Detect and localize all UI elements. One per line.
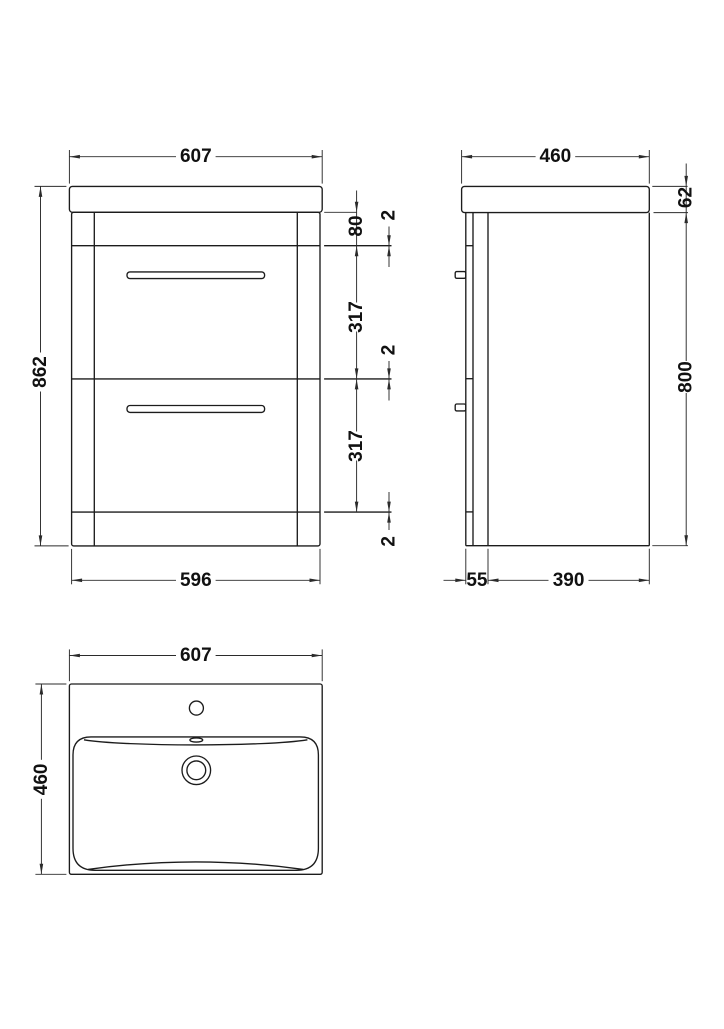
svg-text:800: 800 [676, 361, 697, 393]
svg-text:80: 80 [346, 215, 367, 236]
svg-text:2: 2 [379, 536, 400, 547]
svg-text:862: 862 [30, 356, 51, 388]
svg-text:317: 317 [346, 301, 367, 333]
svg-text:62: 62 [676, 187, 697, 208]
svg-text:317: 317 [346, 430, 367, 462]
svg-text:390: 390 [553, 570, 585, 591]
svg-text:596: 596 [180, 570, 212, 591]
svg-text:460: 460 [31, 764, 52, 796]
svg-text:607: 607 [180, 146, 212, 167]
svg-text:460: 460 [540, 146, 572, 167]
svg-text:2: 2 [379, 210, 400, 221]
svg-text:2: 2 [379, 345, 400, 356]
svg-text:55: 55 [466, 570, 488, 591]
svg-text:607: 607 [180, 645, 212, 666]
